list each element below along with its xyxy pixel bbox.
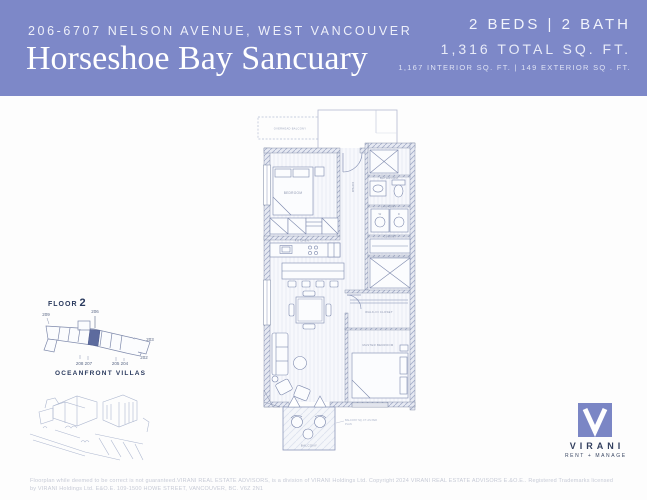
keyplan-diagram: 206 209 208 207 205 204 203 202 bbox=[38, 302, 160, 370]
laundry-label: LAUNDRY bbox=[381, 205, 396, 209]
balcony-note-line2: PLAN bbox=[345, 422, 352, 426]
virani-v-icon bbox=[578, 403, 612, 437]
keyplan-units-208-207: 208 207 bbox=[76, 361, 93, 366]
property-address: 206-6707 NELSON AVENUE, WEST VANCOUVER bbox=[28, 24, 412, 38]
balcony-label: BALCONY bbox=[301, 444, 317, 448]
disclaimer-line1: Floorplan while deemed to be correct is … bbox=[30, 477, 630, 485]
virani-logo: VIRANI RENT + MANAGE bbox=[563, 403, 627, 459]
balcony-note-line1: BALCONY SQ. FT. AS PER bbox=[345, 418, 377, 422]
oceanfront-villas-illustration bbox=[25, 378, 155, 466]
page-title: Horseshoe Bay Sancuary bbox=[26, 40, 368, 78]
washer-label: W bbox=[379, 212, 382, 216]
virani-wordmark: VIRANI bbox=[563, 441, 627, 451]
beds-bath-stat: 2 BEDS | 2 BATH bbox=[398, 16, 631, 33]
header-banner: 206-6707 NELSON AVENUE, WEST VANCOUVER H… bbox=[0, 0, 647, 96]
overhead-label: OVERHEAD BALCONY bbox=[274, 127, 306, 131]
sqft-breakdown-stat: 1,167 INTERIOR SQ. FT. | 149 EXTERIOR SQ… bbox=[398, 63, 631, 72]
keyplan-units-205-204: 205 204 bbox=[112, 361, 129, 366]
property-stats: 2 BEDS | 2 BATH 1,316 TOTAL SQ. FT. 1,16… bbox=[398, 16, 631, 72]
bedroom-label: BEDROOM bbox=[284, 191, 303, 195]
flyer-page: 206-6707 NELSON AVENUE, WEST VANCOUVER H… bbox=[0, 0, 647, 500]
dryer-label: D bbox=[398, 212, 400, 216]
balcony: BALCONY bbox=[283, 396, 335, 450]
keyplan-unit-202: 202 bbox=[140, 355, 148, 360]
floorplan-drawing: OVERHEAD BALCONY bbox=[240, 105, 430, 467]
virani-tagline: RENT + MANAGE bbox=[563, 453, 627, 459]
foyer-label: FOYER bbox=[351, 182, 355, 193]
closet-label: CLOSET bbox=[384, 235, 397, 239]
keyplan-unit-206: 206 bbox=[91, 309, 99, 314]
keyplan-unit-203: 203 bbox=[146, 337, 154, 342]
walkin-closet-label: WALK-IN CLOSET bbox=[365, 310, 393, 314]
keyplan-highlighted-unit bbox=[88, 330, 100, 347]
total-sqft-stat: 1,316 TOTAL SQ. FT. bbox=[398, 41, 631, 57]
bathroom-label: BATHROOM bbox=[380, 176, 399, 180]
disclaimer: Floorplan while deemed to be correct is … bbox=[30, 477, 630, 493]
kitchen-label: KITCHEN bbox=[295, 239, 309, 243]
disclaimer-line2: by VIRANI Holdings Ltd. E&O.E. 109-1500 … bbox=[30, 485, 630, 493]
keyplan-unit-209: 209 bbox=[42, 312, 50, 317]
villas-label: OCEANFRONT VILLAS bbox=[55, 370, 146, 377]
master-bedroom-label: MASTER BEDROOM bbox=[362, 343, 393, 347]
